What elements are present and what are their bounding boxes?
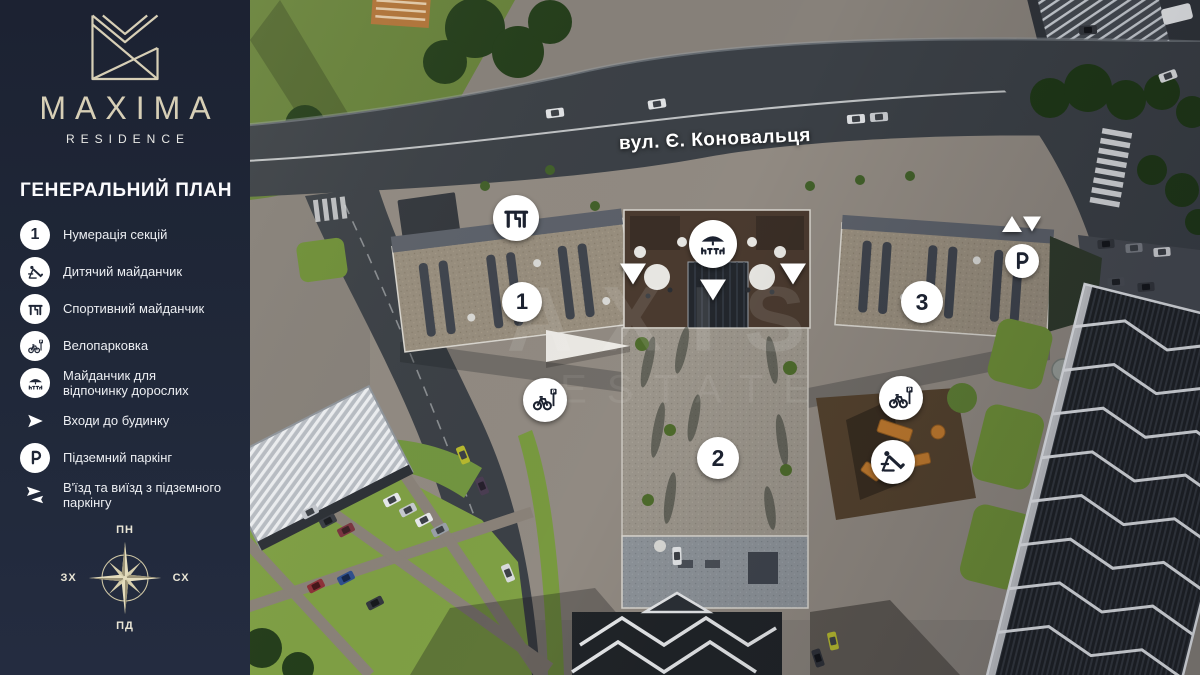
legend-entrances: Входи до будинку xyxy=(20,406,250,436)
marker-entrance-3 xyxy=(780,264,806,285)
legend-rest-area: Майданчик для відпочинку дорослих xyxy=(20,368,250,399)
legend-sport-ground: Спортивний майданчик xyxy=(20,294,250,324)
general-plan-page: вул. Є. Коновальця AXIS ESTATE 123 MAXIM… xyxy=(0,0,1200,675)
number-icon: 1 xyxy=(20,220,50,250)
sidebar: MAXIMA RESIDENCE ГЕНЕРАЛЬНИЙ ПЛАН 1Нумер… xyxy=(0,0,250,675)
bike-icon xyxy=(20,331,50,361)
inout-icon xyxy=(20,480,50,510)
legend-label: Входи до будинку xyxy=(63,413,169,428)
compass: ПН ЗХ xyxy=(35,524,215,632)
brand-name: MAXIMA xyxy=(0,90,250,127)
legend-bike-parking: Велопарковка xyxy=(20,331,250,361)
legend-label: Майданчик для відпочинку дорослих xyxy=(63,368,223,399)
sport-icon xyxy=(20,294,50,324)
marker-entrance-2 xyxy=(700,280,726,301)
legend: 1Нумерація секційДитячий майданчикСпорти… xyxy=(20,220,250,510)
marker-parking-arrow-up xyxy=(1002,216,1022,232)
legend-label: Підземний паркінг xyxy=(63,450,172,465)
legend-label: Дитячий майданчик xyxy=(63,264,182,279)
legend-underground-parking: Підземний паркінг xyxy=(20,443,250,473)
marker-sport-ground xyxy=(493,195,539,241)
legend-label: Нумерація секцій xyxy=(63,227,167,242)
rest-icon xyxy=(20,368,50,398)
maxima-logo-mark xyxy=(88,14,162,82)
legend-kids-playground: Дитячий майданчик xyxy=(20,257,250,287)
compass-east-label: СХ xyxy=(173,572,190,584)
marker-parking-entry xyxy=(1005,244,1039,278)
legend-label: Велопарковка xyxy=(63,338,148,353)
marker-section-1: 1 xyxy=(502,282,542,322)
compass-north-label: ПН xyxy=(116,524,134,536)
marker-kids-playground xyxy=(871,440,915,484)
legend-label: Спортивний майданчик xyxy=(63,301,204,316)
map-markers-layer: 123 xyxy=(250,0,1200,675)
marker-section-3: 3 xyxy=(901,281,943,323)
legend-section-numbering: 1Нумерація секцій xyxy=(20,220,250,250)
marker-bike-parking-right xyxy=(879,376,923,420)
marker-parking-arrow-down xyxy=(1023,217,1041,232)
brand-subtitle: RESIDENCE xyxy=(0,132,250,146)
marker-rest-area xyxy=(689,220,737,268)
maxima-logo: MAXIMA RESIDENCE xyxy=(0,0,250,146)
compass-west-label: ЗХ xyxy=(60,572,76,584)
compass-rose-icon xyxy=(84,537,166,619)
marker-entrance-1 xyxy=(620,264,646,285)
legend-parking-inout: В'їзд та виїзд з підземного паркінгу xyxy=(20,480,250,511)
kids-icon xyxy=(20,257,50,287)
site-plan-map: вул. Є. Коновальця AXIS ESTATE 123 xyxy=(250,0,1200,675)
marker-section-2: 2 xyxy=(697,437,739,479)
parking-icon xyxy=(20,443,50,473)
entrance-icon xyxy=(20,406,50,436)
legend-label: В'їзд та виїзд з підземного паркінгу xyxy=(63,480,223,511)
compass-south-label: ПД xyxy=(116,620,134,632)
marker-bike-parking-left xyxy=(523,378,567,422)
page-title: ГЕНЕРАЛЬНИЙ ПЛАН xyxy=(20,180,250,202)
